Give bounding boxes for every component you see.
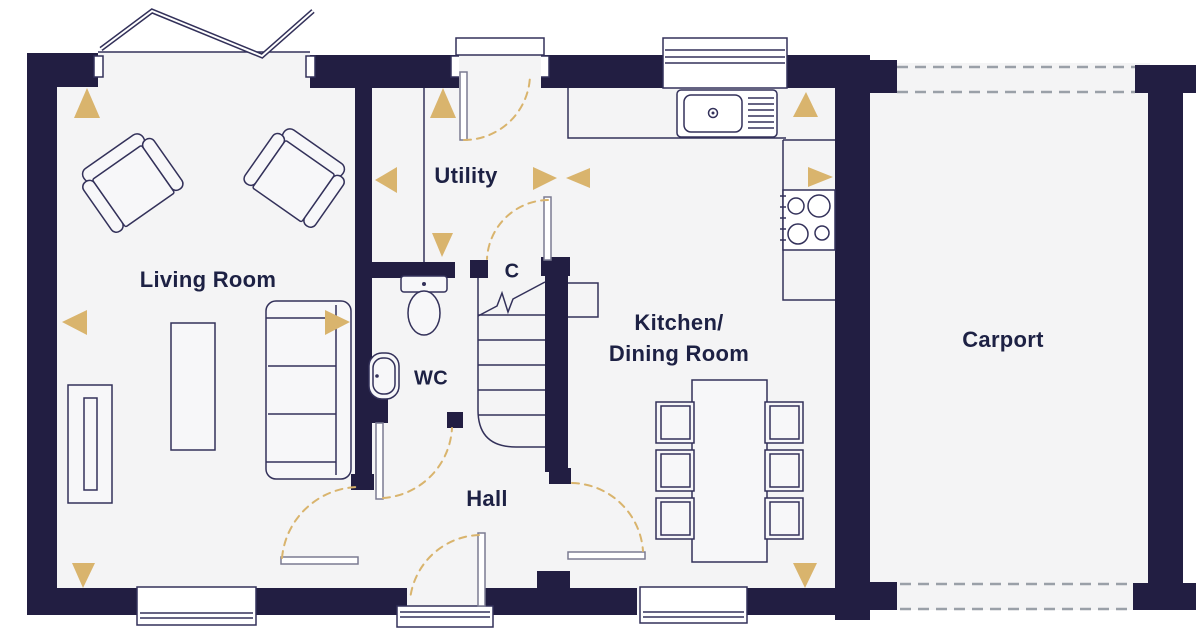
bay-opening-floor xyxy=(98,52,310,88)
front-door-leaf xyxy=(478,533,485,606)
dining-chair-icon xyxy=(656,498,694,539)
sink-icon xyxy=(677,90,777,137)
back-door-leaf xyxy=(460,72,467,140)
dining-chair-icon xyxy=(656,450,694,491)
floor-plan: Living Room Utility WC C Hall Kitchen/ D… xyxy=(0,0,1200,638)
back-door-step xyxy=(456,38,544,55)
basin-icon xyxy=(365,353,399,399)
dining-chair-icon xyxy=(656,402,694,443)
carport-label: Carport xyxy=(962,327,1044,352)
hob-icon xyxy=(780,190,835,250)
living-room-window xyxy=(137,587,256,625)
cupboard-door-leaf xyxy=(544,197,551,260)
living-room-door-leaf xyxy=(281,557,358,564)
cupboard-label: C xyxy=(505,260,520,282)
kitchen-window-bottom xyxy=(640,587,747,623)
wc-door-leaf xyxy=(376,423,383,499)
bifold-door-icon xyxy=(101,11,313,56)
coffee-table-icon xyxy=(171,323,215,450)
wc-label: WC xyxy=(414,367,448,389)
dining-chair-icon xyxy=(765,450,803,491)
front-door-step xyxy=(397,606,493,627)
kitchen-dining-label-line2: Dining Room xyxy=(609,341,749,366)
dining-chair-icon xyxy=(765,498,803,539)
kitchen-door-leaf xyxy=(568,552,645,559)
kitchen-dining-label-line1: Kitchen/ xyxy=(634,310,723,335)
dining-chair-icon xyxy=(765,402,803,443)
kitchen-window-top xyxy=(663,38,787,88)
hall-label: Hall xyxy=(466,486,508,511)
living-room-label: Living Room xyxy=(140,267,277,292)
tv-unit-icon xyxy=(68,385,112,503)
utility-label: Utility xyxy=(434,163,498,188)
dining-table-icon xyxy=(692,380,767,562)
plan-svg: Living Room Utility WC C Hall Kitchen/ D… xyxy=(0,0,1200,638)
